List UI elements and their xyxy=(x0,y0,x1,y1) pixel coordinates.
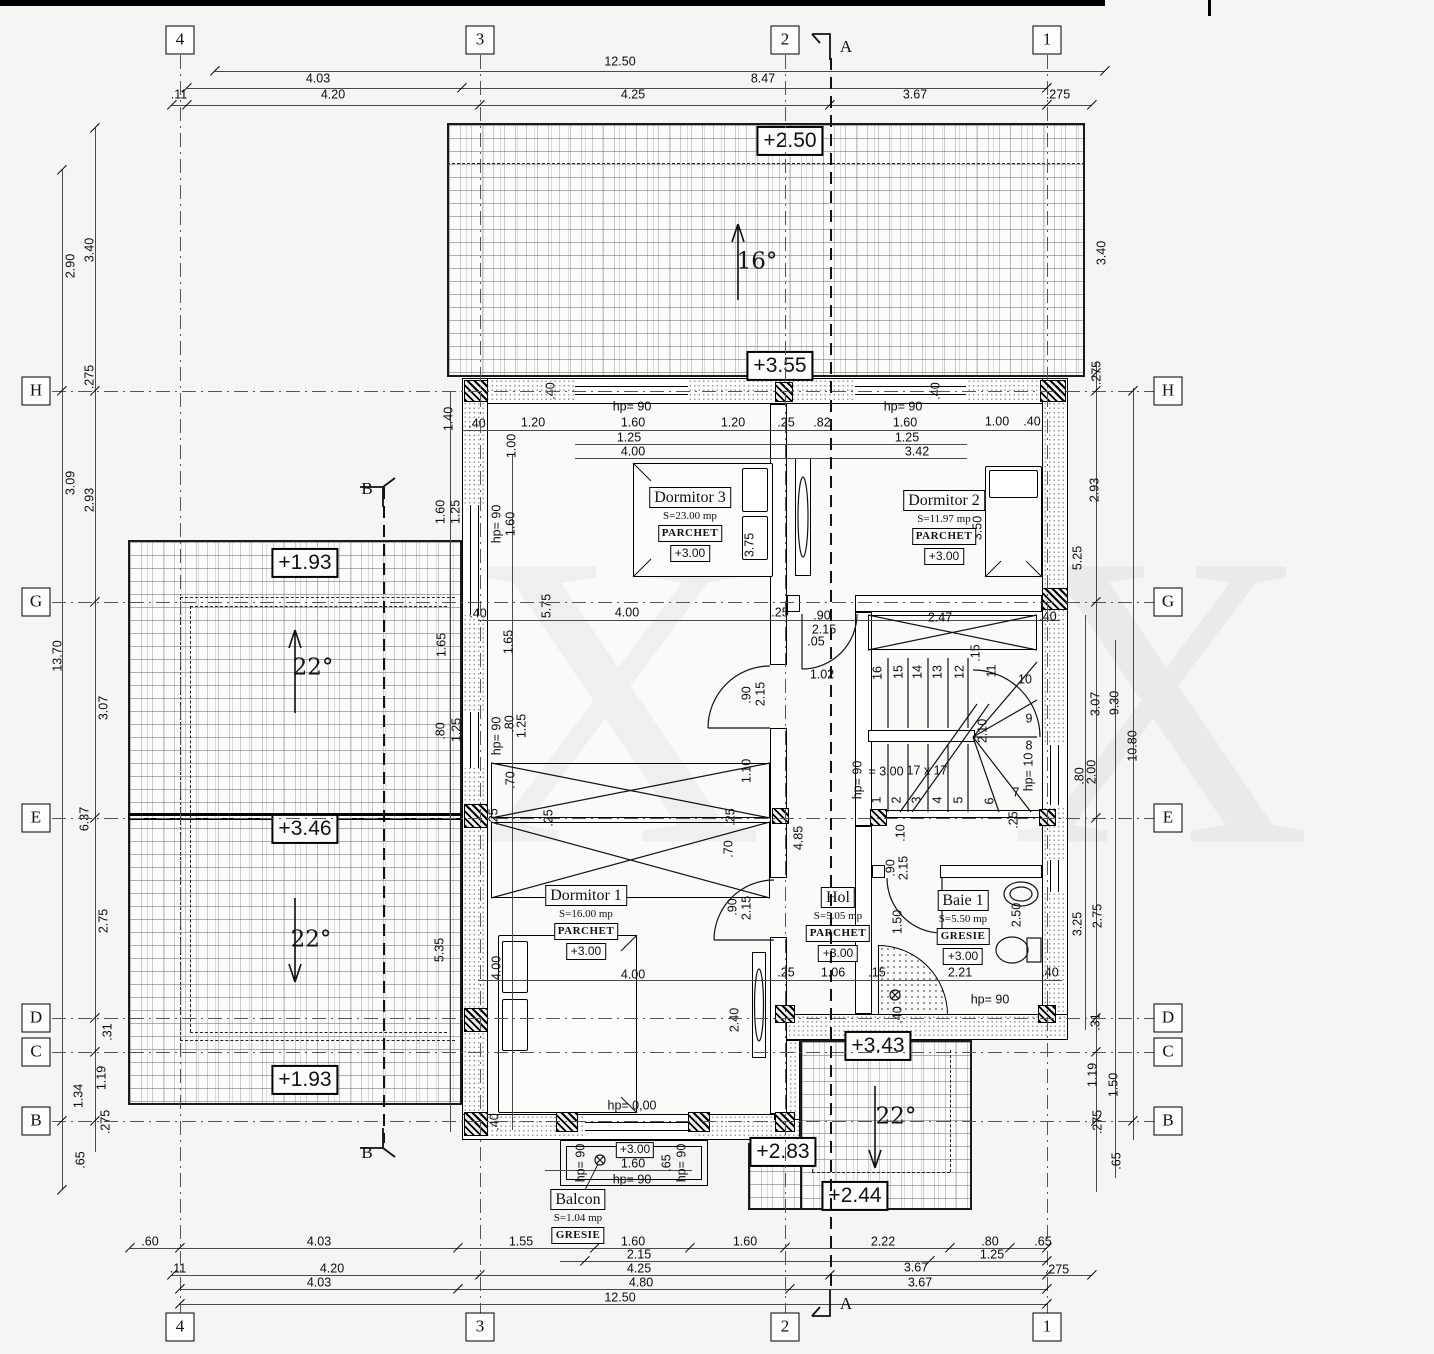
axis-marker-E: E xyxy=(22,804,51,833)
section-label-B: B xyxy=(361,1143,372,1163)
dimension-label: .15 xyxy=(969,644,982,661)
beam-cross-lines xyxy=(491,615,1037,898)
dimension-label: 4.03 xyxy=(307,1276,331,1289)
axis-marker-1: 1 xyxy=(1033,26,1062,55)
dimension-label: 3.67 xyxy=(903,88,927,101)
axis-marker-G: G xyxy=(1154,588,1183,617)
dimension-label: 3.07 xyxy=(1089,692,1102,716)
elevation-label: +2.50 xyxy=(756,126,823,156)
elevation-label: +2.83 xyxy=(749,1137,816,1167)
room-finish: PARCHET xyxy=(658,525,722,541)
axis-marker-H: H xyxy=(22,377,51,406)
dimension-label: .25 xyxy=(777,966,794,979)
dimension-label: 1.50 xyxy=(1107,1073,1120,1097)
dimension-label: 5.35 xyxy=(433,938,446,962)
axis-marker-3: 3 xyxy=(466,1313,495,1342)
slope-angle-label: 22° xyxy=(293,657,334,680)
toilet-icon xyxy=(996,937,1041,963)
dimension-label: .40 xyxy=(1039,610,1056,623)
dimension-label: .275 xyxy=(83,365,96,389)
dimension-label: 12.50 xyxy=(604,55,635,68)
dimension-label: 3.07 xyxy=(97,696,110,720)
dimension-label: 2.50 xyxy=(1010,903,1023,927)
dimension-label: .10 xyxy=(894,824,907,841)
dimension-label: 17 x 17 xyxy=(906,764,947,777)
axis-marker-B: B xyxy=(1154,1107,1183,1136)
elevation-label: +3.55 xyxy=(746,351,813,381)
axis-marker-E: E xyxy=(1154,804,1183,833)
room-level: +3.00 xyxy=(818,945,858,963)
dimension-label: 4.00 xyxy=(490,956,503,980)
dimension-label: 1.60 xyxy=(621,416,645,429)
dimension-label: 1.65 xyxy=(502,630,515,654)
axis-line-row-D xyxy=(52,1018,1180,1019)
dimension-label: 2.15 xyxy=(754,682,767,706)
room-finish: PARCHET xyxy=(912,528,976,544)
dimension-label: 1.40 xyxy=(442,407,455,431)
dimension-label: 8 xyxy=(1026,739,1033,752)
slope-angle-label: 22° xyxy=(291,929,332,952)
dimension-label: 9 xyxy=(1026,712,1033,725)
room-name: Hol xyxy=(821,887,855,908)
dimension-label: 5.25 xyxy=(1071,546,1084,570)
room-label-hol: HolS=5.05 mpPARCHET+3.00 xyxy=(806,887,870,962)
axis-marker-2: 2 xyxy=(771,26,800,55)
dimension-label: 1.25 xyxy=(449,500,462,524)
dimension-label: 4 xyxy=(931,797,944,804)
dimension-label: 6.37 xyxy=(78,807,91,831)
room-level: +3.00 xyxy=(924,548,964,566)
axis-line-row-H xyxy=(52,391,1180,392)
dimension-label: 4.20 xyxy=(320,1262,344,1275)
room-name: Dormitor 3 xyxy=(649,487,731,508)
dimension-label: 2.47 xyxy=(928,611,952,624)
dimension-label: 4.03 xyxy=(307,1235,331,1248)
dimension-label: hp= 90 xyxy=(675,1144,688,1183)
dimension-label: .90 xyxy=(726,898,739,915)
dimension-label: 4.00 xyxy=(621,445,645,458)
dimension-label: 3.75 xyxy=(743,533,756,557)
dimension-label: 4.03 xyxy=(306,72,330,85)
room-finish: PARCHET xyxy=(806,925,870,941)
elevation-label: +3.43 xyxy=(844,1031,911,1061)
room-label-dormitor-1: Dormitor 1S=16.00 mpPARCHET+3.00 xyxy=(545,885,627,960)
dimension-label: hp= 90 xyxy=(613,400,652,413)
dimension-label: 1.19 xyxy=(95,1066,108,1090)
dimension-label: 2.15 xyxy=(627,1248,651,1261)
dimension-label: .70 xyxy=(504,771,517,788)
dimension-label: 1.06 xyxy=(821,966,845,979)
room-area: S=16.00 mp xyxy=(559,908,613,921)
axis-line-col-3 xyxy=(480,55,481,1315)
dimension-label: 1.25 xyxy=(980,1248,1004,1261)
room-level: +3.00 xyxy=(670,545,710,563)
dimension-label: .65 xyxy=(74,1151,87,1168)
dimension-label: 2.93 xyxy=(83,488,96,512)
dimension-label: 1.00 xyxy=(505,434,518,458)
dimension-label: 1.55 xyxy=(509,1235,533,1248)
section-line-B xyxy=(383,487,385,1143)
dimension-label: 1.20 xyxy=(721,416,745,429)
dimension-label: 3.40 xyxy=(1095,241,1108,265)
axis-marker-2: 2 xyxy=(771,1313,800,1342)
dimension-label: .25 xyxy=(724,808,737,825)
axis-marker-G: G xyxy=(22,588,51,617)
room-label-dormitor-3: Dormitor 3S=23.00 mpPARCHET+3.00 xyxy=(649,487,731,562)
room-finish: GRESIE xyxy=(552,1227,605,1243)
dimension-label: hp= 90 xyxy=(884,400,923,413)
room-area: S=5.05 mp xyxy=(814,910,862,923)
dimension-label: hp= 90 xyxy=(971,993,1010,1006)
section-label-B: B xyxy=(361,479,372,499)
dimension-label: 14 xyxy=(911,665,924,679)
dimension-label: 3.09 xyxy=(64,471,77,495)
dimension-label: 2.90 xyxy=(64,254,77,278)
axis-marker-B: B xyxy=(22,1107,51,1136)
dimension-label: 2.21 xyxy=(948,966,972,979)
dimension-label: 1.60 xyxy=(621,1157,645,1170)
dimension-label: .70 xyxy=(722,840,735,857)
dimension-label: hp= 90 xyxy=(574,1144,587,1183)
slope-angle-label: 22° xyxy=(876,1106,917,1129)
dimension-label: .15 xyxy=(868,966,885,979)
room-name: Dormitor 1 xyxy=(545,885,627,906)
room-area: S=5.50 mp xyxy=(939,913,987,926)
dimension-label: 1.60 xyxy=(504,512,517,536)
dimension-label: .31 xyxy=(101,1023,114,1040)
axis-marker-H: H xyxy=(1154,377,1183,406)
section-label-A: A xyxy=(840,1294,852,1314)
dimension-label: 4.20 xyxy=(321,88,345,101)
dimension-label: hp= 90 xyxy=(851,761,864,800)
dimension-label: .60 xyxy=(141,1235,158,1248)
section-label-A: A xyxy=(840,37,852,57)
dimension-label: 1.60 xyxy=(893,416,917,429)
elevation-label: +1.93 xyxy=(271,1065,338,1095)
dimension-label: hp= 90 xyxy=(613,1173,652,1186)
dimension-label: .40 xyxy=(468,417,485,430)
axis-line-col-4 xyxy=(180,55,181,1315)
dimension-label: 1 xyxy=(870,797,883,804)
dimension-label: 16 xyxy=(871,666,884,680)
elevation-label: +1.93 xyxy=(271,548,338,578)
dimension-label: 1.25 xyxy=(515,714,528,738)
axis-line-col-1 xyxy=(1047,55,1048,1315)
axis-line-row-G xyxy=(52,602,1180,603)
axis-marker-D: D xyxy=(22,1004,51,1033)
dimension-label: .40 xyxy=(1023,415,1040,428)
dimension-label: 1.65 xyxy=(435,633,448,657)
dimension-label: 4.25 xyxy=(627,1262,651,1275)
axis-marker-4: 4 xyxy=(166,1313,195,1342)
dimension-label: 4.00 xyxy=(615,606,639,619)
dimension-label: 4.25 xyxy=(621,88,645,101)
dimension-label: 1.60 xyxy=(733,1235,757,1248)
dimension-label: .90 xyxy=(813,609,830,622)
dimension-label: 2.75 xyxy=(97,909,110,933)
dimension-label: .25 xyxy=(771,606,788,619)
dimension-label: .275 xyxy=(1090,361,1103,385)
dimension-label: 1.50 xyxy=(891,910,904,934)
axis-marker-C: C xyxy=(22,1038,51,1067)
dimension-label: 3 xyxy=(910,797,923,804)
dimension-label: .05 xyxy=(807,635,824,648)
dimension-label: 1.25 xyxy=(450,718,463,742)
dimension-label: .25 xyxy=(1007,811,1020,828)
room-label-dormitor-2: Dormitor 2S=11.97 mpPARCHET+3.00 xyxy=(903,490,985,565)
dimension-label: .65 xyxy=(1110,1152,1123,1169)
dimension-label: .275 xyxy=(1045,1263,1069,1276)
dimension-label: 12 xyxy=(953,665,966,679)
dimension-label: 10 xyxy=(1018,673,1032,686)
section-flag xyxy=(360,34,830,1316)
dimension-label: 1.00 xyxy=(985,415,1009,428)
dimension-label: 5.75 xyxy=(540,594,553,618)
dimension-label: .275 xyxy=(99,1110,112,1134)
dimension-label: 5 xyxy=(952,797,965,804)
dimension-label: = 3,00 xyxy=(868,765,903,778)
dimension-label: 9.30 xyxy=(1108,691,1121,715)
axis-marker-4: 4 xyxy=(166,26,195,55)
dimension-label: 2.00 xyxy=(1085,760,1098,784)
dimension-label: 2.22 xyxy=(871,1235,895,1248)
elevation-label: +3.00 xyxy=(616,1142,654,1158)
dimension-label: .40 xyxy=(469,607,486,620)
dimension-label: 1.25 xyxy=(617,431,641,444)
slope-angle-label: 16° xyxy=(737,251,778,274)
room-name: Balcon xyxy=(550,1189,605,1210)
axis-line-row-B xyxy=(52,1121,1180,1122)
room-name: Dormitor 2 xyxy=(903,490,985,511)
dimension-label: .90 xyxy=(740,686,753,703)
room-level: +3.00 xyxy=(943,948,983,966)
axis-line-row-E xyxy=(52,818,1180,819)
dimension-label: .25 xyxy=(777,416,794,429)
room-finish: GRESIE xyxy=(937,928,990,944)
axis-line-row-C xyxy=(52,1052,1180,1053)
dimension-label: 6 xyxy=(983,798,996,805)
dimension-label: 1.60 xyxy=(434,500,447,524)
dimension-label: .40 xyxy=(891,1006,904,1023)
dimension-label: 13.70 xyxy=(51,640,64,671)
dimension-label: 1.25 xyxy=(895,431,919,444)
dimension-label: 2.15 xyxy=(897,856,910,880)
room-finish: PARCHET xyxy=(554,923,618,939)
dimension-label: 15 xyxy=(892,665,905,679)
shower-drain-icon xyxy=(890,990,900,1000)
dimension-label: 1.19 xyxy=(1086,1063,1099,1087)
dimension-label: 1.34 xyxy=(72,1084,85,1108)
dimension-label: 2.15 xyxy=(740,896,753,920)
dimension-label: .65 xyxy=(660,1154,673,1171)
dimension-label: 13 xyxy=(931,665,944,679)
dimension-label: 3.25 xyxy=(1071,912,1084,936)
dimension-label: .40 xyxy=(1041,966,1058,979)
plan-linework xyxy=(0,0,1434,1354)
room-area: S=11.97 mp xyxy=(917,513,970,526)
axis-marker-1: 1 xyxy=(1033,1313,1062,1342)
room-level: +3.00 xyxy=(566,943,606,961)
dimension-label: .82 xyxy=(813,416,830,429)
dimension-label: 2 xyxy=(890,797,903,804)
dimension-label: hp= 90 xyxy=(490,505,503,544)
axis-marker-D: D xyxy=(1154,1004,1183,1033)
dimension-label: 8.47 xyxy=(751,72,775,85)
section-line-A xyxy=(830,58,832,1292)
room-label-baie-1: Baie 1S=5.50 mpGRESIE+3.00 xyxy=(937,890,990,965)
floor-plan-drawing: XX xyxy=(0,0,1434,1354)
axis-line-col-2 xyxy=(785,55,786,1315)
room-area: S=23.00 mp xyxy=(663,510,717,523)
dimension-label: hp= 0,00 xyxy=(607,1099,656,1112)
dimension-label: 11 xyxy=(985,665,998,678)
room-label-balcon: BalconS=1.04 mpGRESIE xyxy=(550,1189,605,1244)
dimension-label: 4.00 xyxy=(621,968,645,981)
dimension-label: 4.85 xyxy=(792,826,805,850)
dimension-label: 2.10 xyxy=(976,719,989,743)
dimension-label: 3.42 xyxy=(905,445,929,458)
room-area: S=1.04 mp xyxy=(554,1212,602,1225)
dimension-label: 2.75 xyxy=(1091,904,1104,928)
dimension-label: .25 xyxy=(487,808,500,825)
dimension-label: 1.10 xyxy=(740,759,753,783)
dimension-label: 1.20 xyxy=(521,416,545,429)
dimension-label: 3.67 xyxy=(908,1276,932,1289)
dimension-label: .80 xyxy=(434,722,447,739)
dimension-label: .40 xyxy=(488,1113,501,1130)
room-name: Baie 1 xyxy=(937,890,988,911)
dimension-label: 2.40 xyxy=(728,1008,741,1032)
dimension-label: 3.40 xyxy=(83,238,96,262)
axis-marker-3: 3 xyxy=(466,26,495,55)
dimension-label: hp= 10 xyxy=(1022,753,1035,792)
dimension-label: 7 xyxy=(1013,786,1020,799)
dimension-label: 4.80 xyxy=(629,1276,653,1289)
dimension-label: 3.67 xyxy=(904,1261,928,1274)
dimension-label: 10.80 xyxy=(1126,730,1139,761)
dimension-label: 2.93 xyxy=(1088,478,1101,502)
dimension-label: 12.50 xyxy=(604,1291,635,1304)
axis-marker-C: C xyxy=(1154,1038,1183,1067)
radiator-detail xyxy=(755,477,809,1041)
